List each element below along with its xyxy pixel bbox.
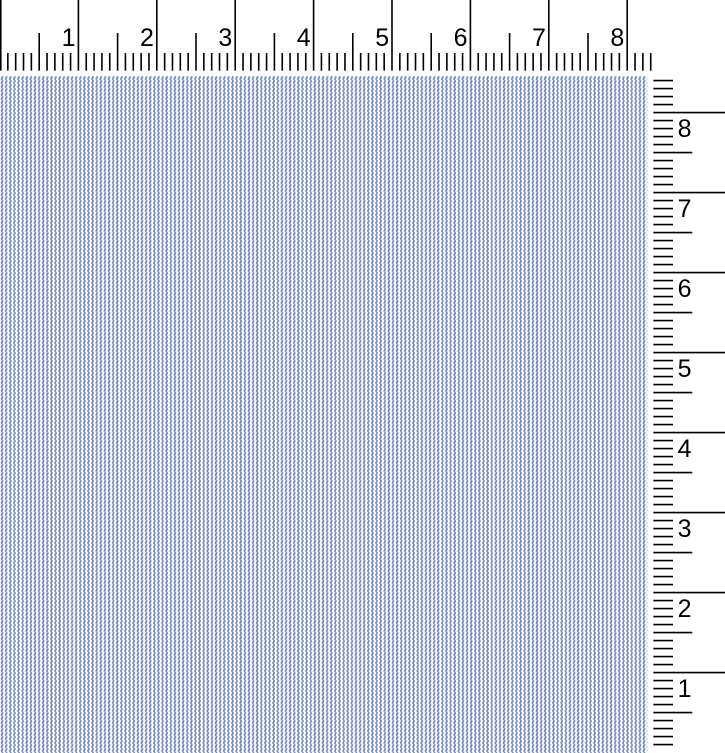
- svg-text:8: 8: [678, 115, 692, 143]
- svg-text:7: 7: [678, 195, 692, 223]
- svg-text:6: 6: [678, 275, 692, 303]
- svg-text:5: 5: [375, 24, 389, 52]
- svg-text:5: 5: [678, 355, 692, 383]
- svg-text:4: 4: [297, 24, 311, 52]
- svg-text:7: 7: [532, 24, 546, 52]
- svg-text:4: 4: [678, 435, 692, 463]
- svg-text:8: 8: [610, 24, 624, 52]
- svg-text:3: 3: [218, 24, 232, 52]
- svg-text:2: 2: [678, 595, 692, 623]
- svg-text:2: 2: [140, 24, 154, 52]
- svg-text:1: 1: [678, 675, 692, 703]
- svg-text:6: 6: [454, 24, 468, 52]
- svg-text:1: 1: [62, 24, 76, 52]
- svg-text:3: 3: [678, 515, 692, 543]
